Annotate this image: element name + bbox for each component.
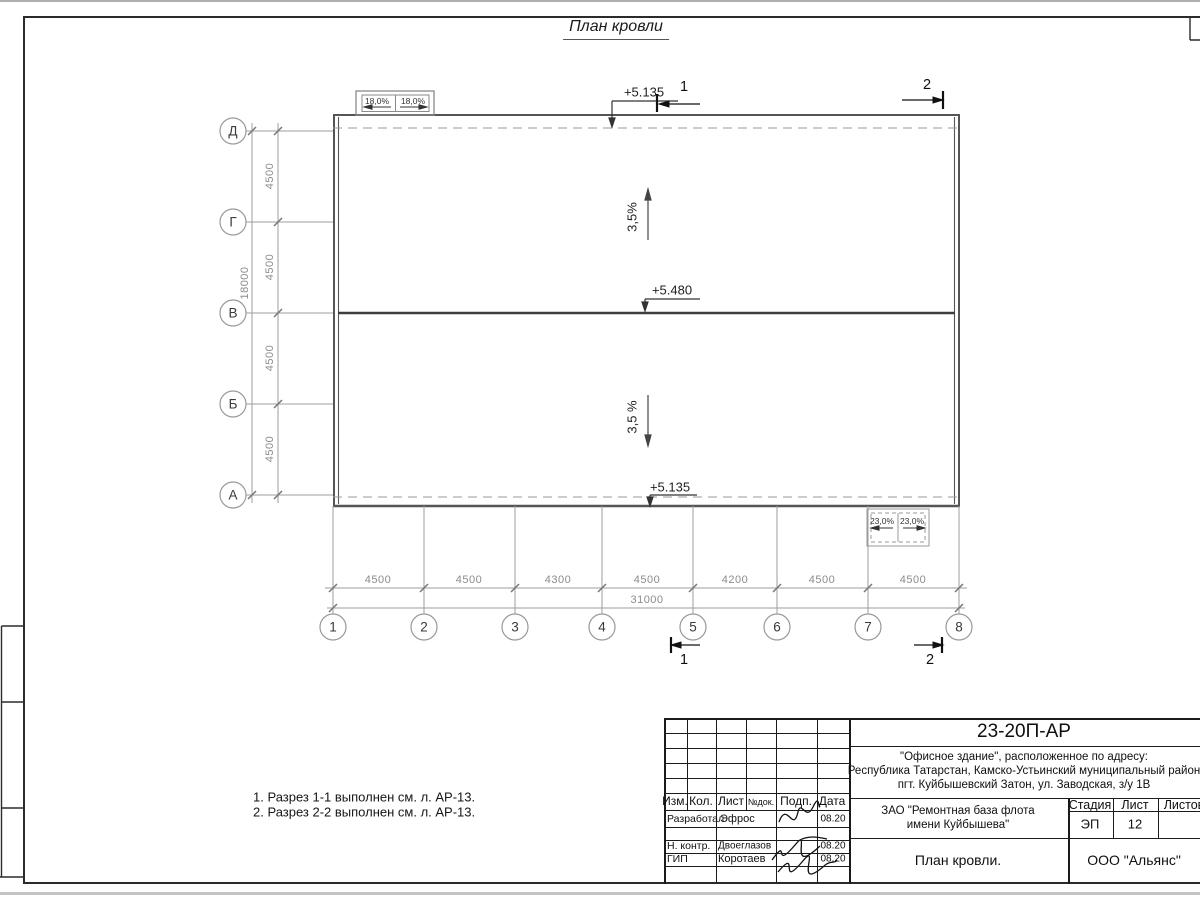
axis-lines xyxy=(246,131,959,614)
canopy-bottom-right-label: 23,0% xyxy=(900,516,924,526)
top-right-margin-box xyxy=(1190,17,1200,40)
client-line-1: ЗАО "Ремонтная база флота xyxy=(881,805,1034,817)
section-mark-bottom-1: 1 xyxy=(680,652,688,668)
address-line-3: пгт. Куйбышевский Затон, ул. Заводская, … xyxy=(898,779,1151,791)
dim-left-3: 4500 xyxy=(264,345,276,371)
canopy-bottom-left-label: 23,0% xyxy=(870,516,894,526)
slope-lower-label: 3,5 % xyxy=(625,400,640,433)
elevation-bottom: +5.135 xyxy=(650,480,690,495)
sheets-label: Листов xyxy=(1164,798,1200,812)
axis-row-g: Г xyxy=(229,215,236,230)
axis-col-1: 1 xyxy=(329,620,337,635)
sig-date-1: 08.20 xyxy=(820,814,845,825)
sig-name-1: Эфрос xyxy=(720,813,755,825)
axis-col-3: 3 xyxy=(511,620,519,635)
elevation-ridge: +5.480 xyxy=(652,283,692,298)
canopy-top-right-label: 18,0% xyxy=(401,96,425,106)
axis-col-7: 7 xyxy=(864,620,872,635)
axis-col-5: 5 xyxy=(689,620,697,635)
sheet-label: Лист xyxy=(1121,798,1148,812)
dim-bottom-5: 4200 xyxy=(722,574,748,586)
axis-col-4: 4 xyxy=(598,620,606,635)
slope-arrows xyxy=(645,189,651,446)
elevation-top: +5.135 xyxy=(624,85,664,100)
client-line-2: имени Куйбышева" xyxy=(907,819,1010,831)
address-line-1: "Офисное здание", расположенное по адрес… xyxy=(900,751,1148,763)
col-izm: Изм. xyxy=(662,794,688,808)
doc-number: 23-20П-АР xyxy=(977,721,1071,743)
building-outline xyxy=(333,115,960,506)
address-line-2: Республика Татарстан, Камско-Устьинский … xyxy=(848,765,1200,777)
stage-value: ЭП xyxy=(1081,817,1100,832)
section-mark-top-1: 1 xyxy=(680,79,688,95)
dim-bottom-2: 4500 xyxy=(456,574,482,586)
drawing-name: План кровли. xyxy=(915,852,1001,868)
col-kol: Кол. xyxy=(689,794,713,808)
dim-bottom-total: 31000 xyxy=(630,594,663,606)
dim-bottom-4: 4500 xyxy=(634,574,660,586)
drawing-sheet: План кровли Д Г В Б А 1 2 3 4 5 6 7 8 45… xyxy=(0,0,1200,900)
sig-date-3: 08.20 xyxy=(820,854,845,865)
dimension-lines xyxy=(252,123,967,608)
dim-bottom-6: 4500 xyxy=(809,574,835,586)
axis-row-b: Б xyxy=(229,397,238,412)
col-podp: Подп. xyxy=(780,794,812,808)
dim-left-4: 4500 xyxy=(264,436,276,462)
dim-bottom-1: 4500 xyxy=(365,574,391,586)
slope-upper-label: 3,5% xyxy=(625,202,640,232)
elevation-mark-arrows xyxy=(609,101,700,506)
organization: ООО "Альянс" xyxy=(1087,852,1181,868)
col-list: Лист xyxy=(718,794,744,808)
note-line-1: 1. Разрез 1-1 выполнен см. л. АР-13. xyxy=(253,790,475,805)
axis-row-d: Д xyxy=(228,124,237,139)
sig-name-3: Коротаев xyxy=(718,853,766,865)
dim-left-total: 18000 xyxy=(239,266,251,299)
dimension-ticks xyxy=(248,127,963,612)
col-ndok: №док. xyxy=(748,797,774,807)
note-line-2: 2. Разрез 2-2 выполнен см. л. АР-13. xyxy=(253,805,475,820)
left-margin-boxes xyxy=(0,626,23,877)
axis-row-v: В xyxy=(228,306,237,321)
sig-role-3: ГИП xyxy=(667,853,688,865)
sig-role-1: Разработал xyxy=(667,813,724,825)
sheet-value: 12 xyxy=(1128,817,1142,832)
canopy-top-left-label: 18,0% xyxy=(365,96,389,106)
page-title: План кровли xyxy=(563,18,669,40)
col-data: Дата xyxy=(819,794,846,808)
sig-role-2: Н. контр. xyxy=(667,840,710,852)
dim-left-1: 4500 xyxy=(264,163,276,189)
section-mark-bottom-2: 2 xyxy=(926,652,934,668)
axis-row-a: А xyxy=(228,488,237,503)
sig-date-2: 08.20 xyxy=(820,841,845,852)
axis-col-8: 8 xyxy=(955,620,963,635)
dim-bottom-3: 4300 xyxy=(545,574,571,586)
dim-bottom-7: 4500 xyxy=(900,574,926,586)
axis-col-6: 6 xyxy=(773,620,781,635)
sig-name-2: Двоеглазов xyxy=(718,841,771,852)
section-mark-top-2: 2 xyxy=(923,77,931,93)
dim-left-2: 4500 xyxy=(264,254,276,280)
axis-col-2: 2 xyxy=(420,620,428,635)
stage-label: Стадия xyxy=(1069,798,1112,812)
section-cut-marks xyxy=(657,91,943,653)
